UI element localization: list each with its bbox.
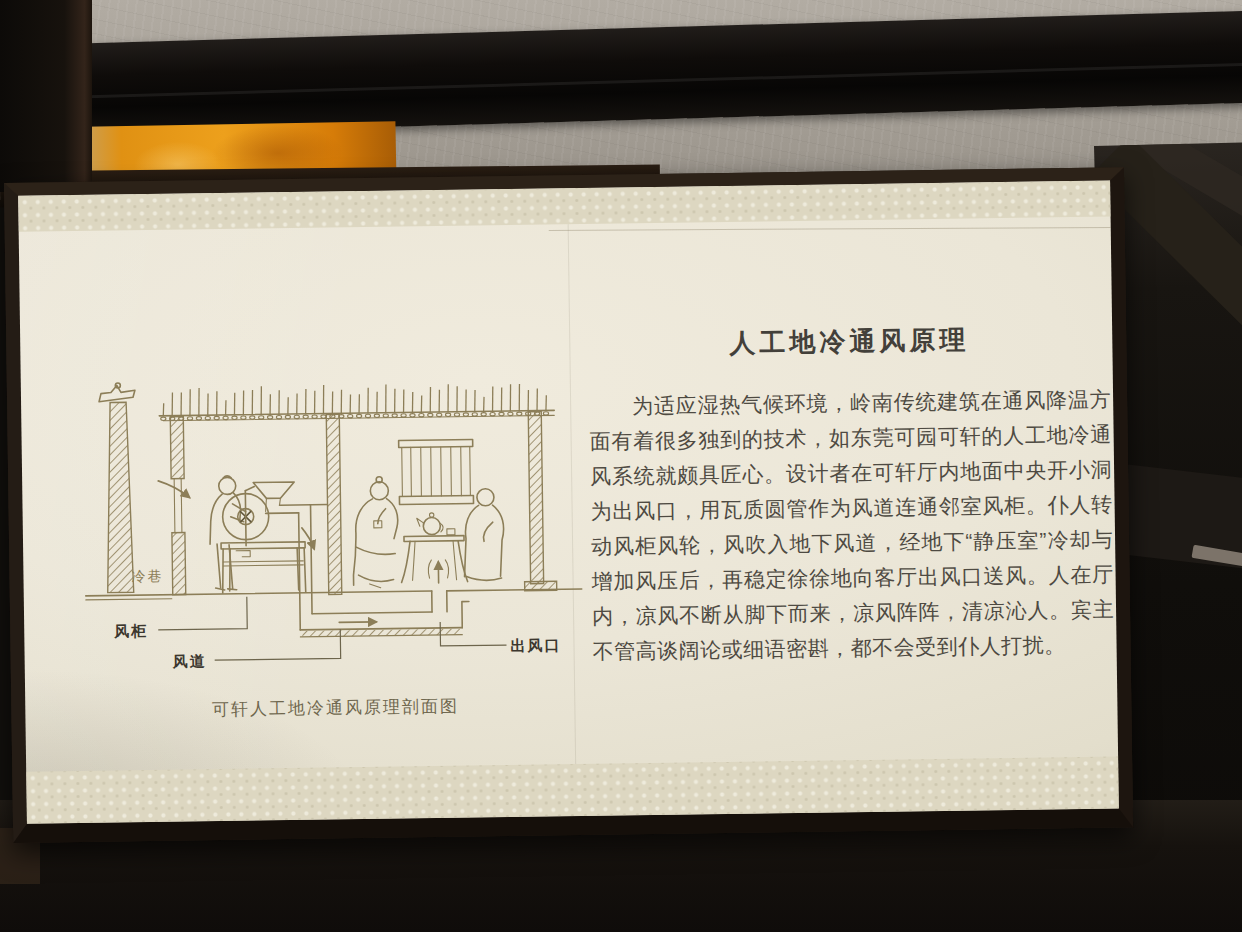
- page-title: 人工地冷通风原理: [588, 321, 1110, 363]
- label-wind-cabinet: 风柜: [113, 622, 148, 639]
- hall-window: [399, 439, 474, 504]
- label-cold-alley: 冷巷: [131, 568, 163, 584]
- body-paragraph: 为适应湿热气候环境，岭南传统建筑在通风降温方面有着很多独到的技术，如东莞可园可轩…: [589, 382, 1115, 669]
- label-air-outlet-group: 出风口: [440, 620, 561, 655]
- roof: [159, 382, 554, 421]
- diagram-caption: 可轩人工地冷通风原理剖面图: [165, 694, 505, 722]
- label-air-duct: 风道: [172, 652, 207, 669]
- decorative-band-top: [18, 181, 1110, 232]
- museum-photo-scene: 人工地冷通风原理 为适应湿热气候环境，岭南传统建筑在通风降温方面有着很多独到的技…: [0, 0, 1242, 932]
- middle-wall: [326, 414, 342, 594]
- teapot: [423, 517, 440, 534]
- surface-scratch: [549, 227, 1115, 231]
- label-wind-cabinet-group: 风柜: [113, 597, 248, 640]
- dark-corner-post: [0, 0, 92, 192]
- decorative-band-bottom: [26, 757, 1119, 824]
- tea-table: [401, 512, 468, 582]
- cold-alley-column: [99, 383, 138, 593]
- downward-air-arrow: [302, 528, 314, 549]
- info-board-face: 人工地冷通风原理 为适应湿热气候环境，岭南传统建筑在通风降温方面有着很多独到的技…: [18, 181, 1119, 824]
- wheel-stand: [221, 542, 306, 593]
- info-board-frame: 人工地冷通风原理 为适应湿热气候环境，岭南传统建筑在通风降温方面有着很多独到的技…: [4, 167, 1133, 843]
- servant-figure: [209, 476, 247, 590]
- underground-duct: [299, 560, 469, 637]
- ventilation-section-diagram: 冷巷 风柜 风道 出风口: [81, 374, 586, 733]
- diagram-svg: 冷巷 风柜 风道 出风口: [81, 374, 586, 733]
- duct-air-arrow: [339, 622, 376, 623]
- right-wall: [522, 411, 556, 590]
- seated-guest-left: [352, 477, 399, 589]
- label-air-outlet: 出风口: [510, 636, 561, 654]
- text-column: 人工地冷通风原理 为适应湿热气候环境，岭南传统建筑在通风降温方面有着很多独到的技…: [588, 321, 1115, 669]
- tea-cup: [447, 529, 455, 535]
- seated-guest-right: [463, 489, 504, 581]
